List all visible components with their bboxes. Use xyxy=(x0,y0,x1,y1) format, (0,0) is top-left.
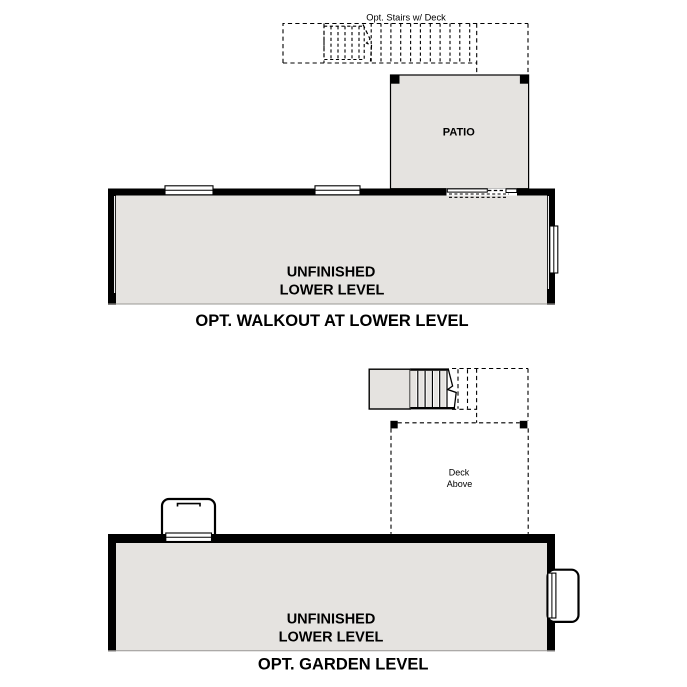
svg-text:Deck: Deck xyxy=(449,468,470,478)
svg-text:UNFINISHED: UNFINISHED xyxy=(287,265,376,281)
svg-text:OPT. WALKOUT AT LOWER LEVEL: OPT. WALKOUT AT LOWER LEVEL xyxy=(195,312,468,330)
svg-text:LOWER LEVEL: LOWER LEVEL xyxy=(279,630,384,646)
svg-text:Above: Above xyxy=(447,479,473,489)
svg-text:OPT. GARDEN LEVEL: OPT. GARDEN LEVEL xyxy=(258,656,429,674)
svg-text:PATIO: PATIO xyxy=(443,126,475,138)
svg-text:LOWER LEVEL: LOWER LEVEL xyxy=(280,283,385,299)
svg-text:Opt. Stairs w/ Deck: Opt. Stairs w/ Deck xyxy=(366,12,446,22)
svg-text:UNFINISHED: UNFINISHED xyxy=(287,612,376,628)
